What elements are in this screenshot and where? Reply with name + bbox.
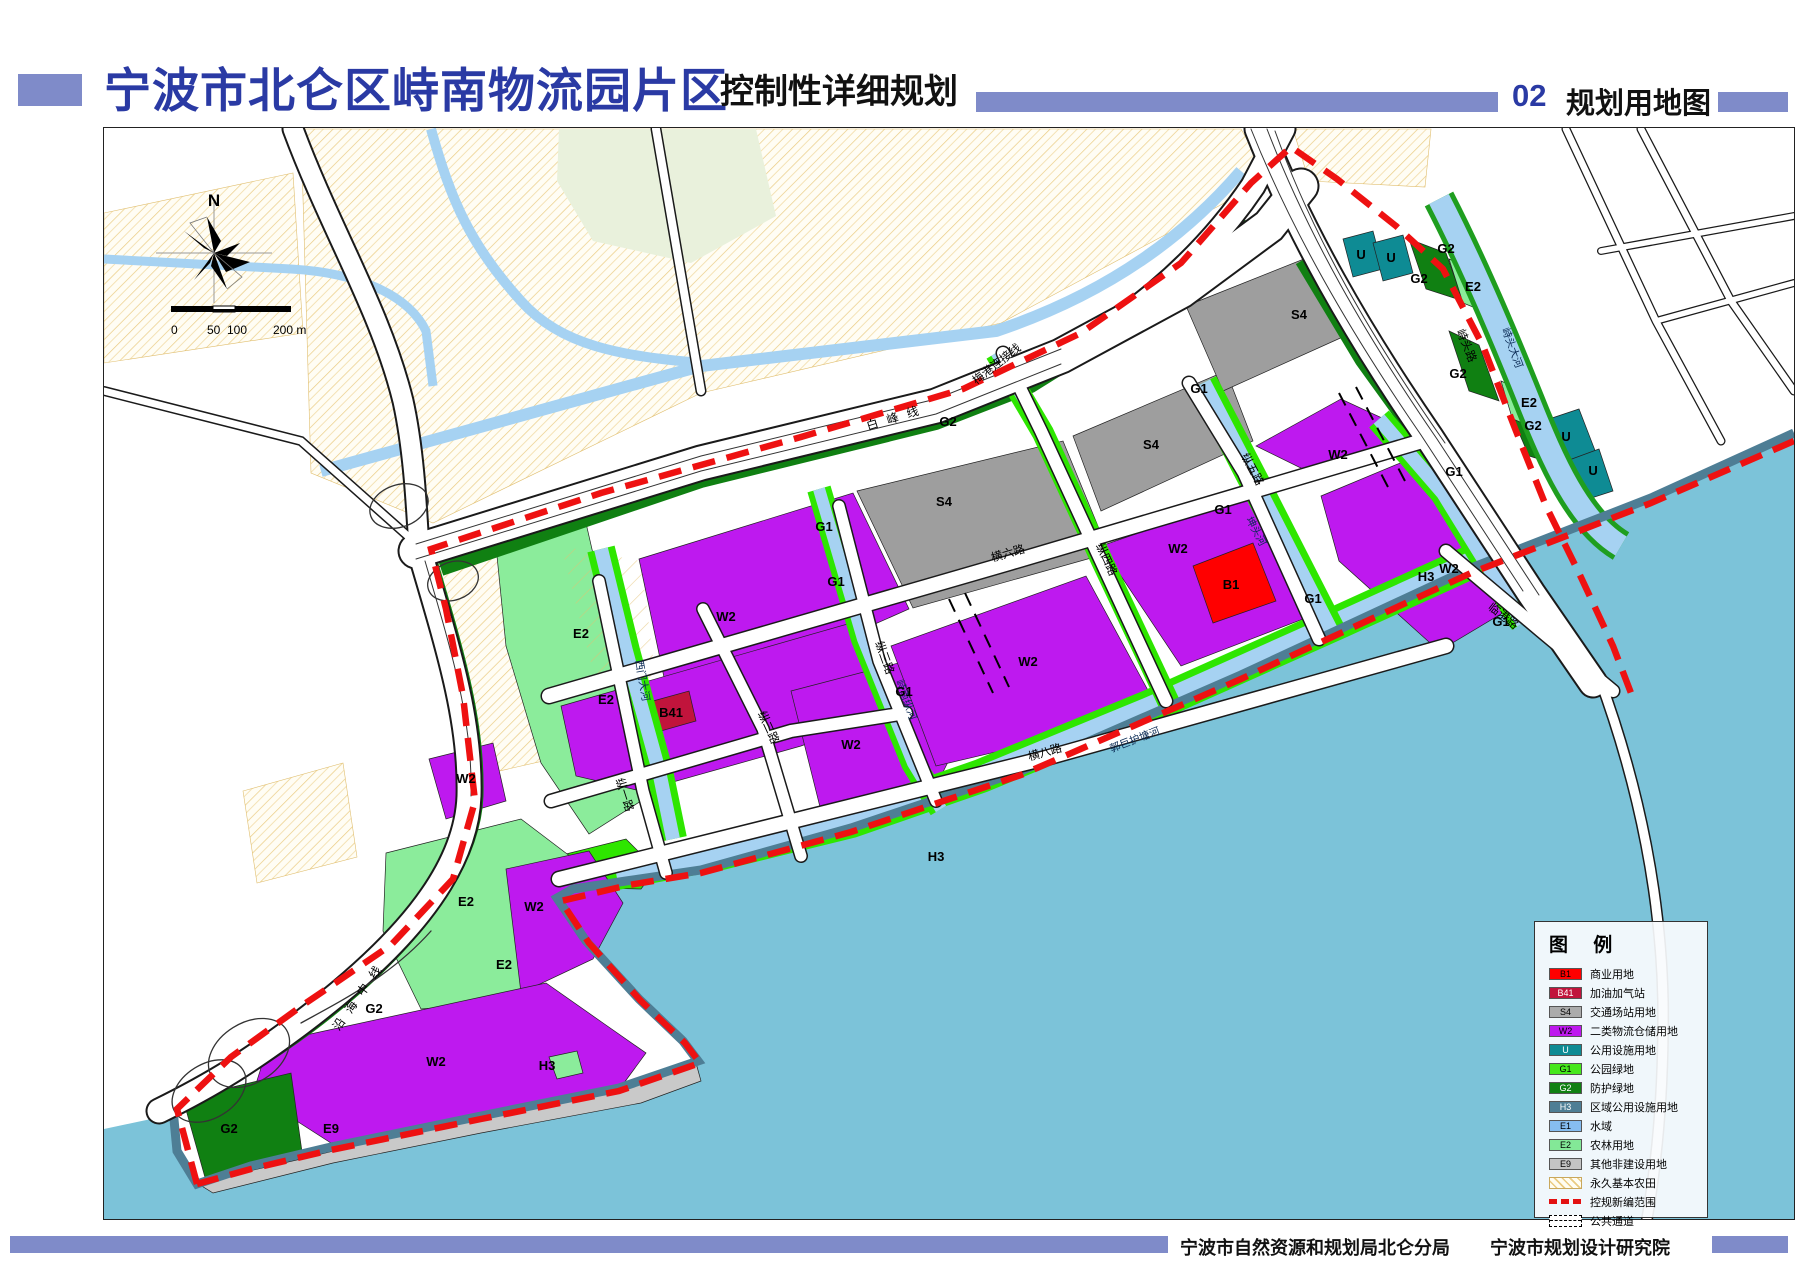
zone-code-label: B1 <box>1223 577 1240 592</box>
svg-text:N: N <box>208 191 220 210</box>
legend-item: W2二类物流仓储用地 <box>1549 1021 1707 1040</box>
zone-code-label: G2 <box>1410 271 1427 286</box>
legend-swatch: E2 <box>1549 1139 1582 1151</box>
legend-swatch <box>1549 1215 1582 1227</box>
legend-label: 公用设施用地 <box>1590 1042 1656 1058</box>
zone-code-label: W2 <box>841 737 861 752</box>
legend-item: 控规新编范围 <box>1549 1192 1707 1211</box>
legend-item: U公用设施用地 <box>1549 1040 1707 1059</box>
zone-code-label: W2 <box>456 771 476 786</box>
header-accent-square <box>18 74 82 106</box>
footer-org1: 宁波市自然资源和规划局北仑分局 <box>1180 1238 1450 1258</box>
page-title: 宁波市北仑区峙南物流园片区 <box>104 52 728 121</box>
legend-swatch: B1 <box>1549 968 1582 980</box>
zone-code-label: H3 <box>928 849 945 864</box>
legend-label: 区域公用设施用地 <box>1590 1099 1678 1115</box>
zone-code-label: W2 <box>1018 654 1038 669</box>
zone-code-label: G1 <box>815 519 832 534</box>
page-subtitle: 控制性详细规划 <box>720 64 958 113</box>
zone-code-label: W2 <box>524 899 544 914</box>
legend-label: 农林用地 <box>1590 1137 1634 1153</box>
legend-label: 二类物流仓储用地 <box>1590 1023 1678 1039</box>
legend-label: 公共通道 <box>1590 1213 1634 1229</box>
legend-title: 图 例 <box>1549 930 1707 957</box>
legend-swatch: U <box>1549 1044 1582 1056</box>
legend-item: G1公园绿地 <box>1549 1059 1707 1078</box>
planning-map-page: { "header": { "title": "宁波市北仑区峙南物流园片区", … <box>0 0 1797 1267</box>
legend-item: 永久基本农田 <box>1549 1173 1707 1192</box>
footer-org2: 宁波市规划设计研究院 <box>1490 1238 1670 1258</box>
zone-code-label: G2 <box>939 414 956 429</box>
zone-code-label: G1 <box>827 574 844 589</box>
zone-code-label: G2 <box>1524 418 1541 433</box>
scale-label: 0 <box>171 323 178 337</box>
zone-code-label: E2 <box>1521 395 1537 410</box>
legend-item: H3区域公用设施用地 <box>1549 1097 1707 1116</box>
legend-label: 加油加气站 <box>1590 985 1645 1001</box>
zone-code-label: G1 <box>1214 502 1231 517</box>
footer-accent-bar-right <box>1712 1236 1788 1253</box>
legend-swatch: W2 <box>1549 1025 1582 1037</box>
zone-code-label: U <box>1356 247 1365 262</box>
legend-label: 水域 <box>1590 1118 1612 1134</box>
zone-code-label: G1 <box>1190 381 1207 396</box>
header-accent-bar-right <box>1718 92 1788 112</box>
legend-item: E9其他非建设用地 <box>1549 1154 1707 1173</box>
legend-swatch: B41 <box>1549 987 1582 999</box>
legend-swatch: E9 <box>1549 1158 1582 1170</box>
legend-swatch: H3 <box>1549 1101 1582 1113</box>
scale-label: 200 m <box>273 323 306 337</box>
legend-swatch <box>1549 1196 1582 1208</box>
scale-label: 50 <box>207 323 221 337</box>
legend-swatch: G1 <box>1549 1063 1582 1075</box>
legend-label: 其他非建设用地 <box>1590 1156 1667 1172</box>
zone-code-label: U <box>1386 250 1395 265</box>
zone-code-label: W2 <box>1439 561 1459 576</box>
zone-code-label: E2 <box>496 957 512 972</box>
footer-credits: 宁波市自然资源和规划局北仑分局宁波市规划设计研究院 <box>1180 1234 1670 1260</box>
zone-code-label: E2 <box>1465 279 1481 294</box>
zone-code-label: G1 <box>1445 464 1462 479</box>
legend-label: 公园绿地 <box>1590 1061 1634 1077</box>
legend-item: 公共通道 <box>1549 1211 1707 1230</box>
zone-code-label: W2 <box>1328 447 1348 462</box>
legend-item: S4交通场站用地 <box>1549 1002 1707 1021</box>
zone-code-label: G1 <box>1492 614 1509 629</box>
legend-item: E2农林用地 <box>1549 1135 1707 1154</box>
zone-code-label: W2 <box>716 609 736 624</box>
legend-item: B41加油加气站 <box>1549 983 1707 1002</box>
legend-label: 商业用地 <box>1590 966 1634 982</box>
chapter-number: 02 <box>1512 78 1546 114</box>
zone-code-label: S4 <box>936 494 953 509</box>
zone-code-label: G2 <box>1437 241 1454 256</box>
zone-code-label: E2 <box>598 692 614 707</box>
legend-label: 永久基本农田 <box>1590 1175 1656 1191</box>
zone-code-label: G1 <box>1304 591 1321 606</box>
legend-swatch: E1 <box>1549 1120 1582 1132</box>
legend-swatch: S4 <box>1549 1006 1582 1018</box>
legend-swatch: G2 <box>1549 1082 1582 1094</box>
zone-code-label: U <box>1588 463 1597 478</box>
zone-code-label: S4 <box>1291 307 1308 322</box>
zone-code-label: G2 <box>1449 366 1466 381</box>
chapter-title: 规划用地图 <box>1566 80 1711 122</box>
zone-code-label: H3 <box>1418 569 1435 584</box>
legend-item: G2防护绿地 <box>1549 1078 1707 1097</box>
header-accent-bar <box>976 92 1498 112</box>
zone-code-label: E2 <box>573 626 589 641</box>
zone-code-label: W2 <box>1168 541 1188 556</box>
scale-label: 100 <box>227 323 247 337</box>
legend: 图 例 B1商业用地B41加油加气站S4交通场站用地W2二类物流仓储用地U公用设… <box>1534 921 1708 1218</box>
legend-label: 控规新编范围 <box>1590 1194 1656 1210</box>
footer-accent-bar-left <box>10 1236 1168 1253</box>
zone-code-label: H3 <box>539 1058 556 1073</box>
zone-code-label: G1 <box>895 684 912 699</box>
zone-code-label: G2 <box>220 1121 237 1136</box>
legend-swatch <box>1549 1177 1582 1189</box>
legend-item: E1水域 <box>1549 1116 1707 1135</box>
zone-code-label: E2 <box>458 894 474 909</box>
legend-label: 交通场站用地 <box>1590 1004 1656 1020</box>
zone-code-label: G2 <box>365 1001 382 1016</box>
zone-code-label: W2 <box>426 1054 446 1069</box>
legend-item: B1商业用地 <box>1549 964 1707 983</box>
zone-code-label: E9 <box>323 1121 339 1136</box>
zone-code-label: B41 <box>659 705 683 720</box>
zone-code-label: U <box>1561 429 1570 444</box>
zone-code-label: S4 <box>1143 437 1160 452</box>
legend-label: 防护绿地 <box>1590 1080 1634 1096</box>
